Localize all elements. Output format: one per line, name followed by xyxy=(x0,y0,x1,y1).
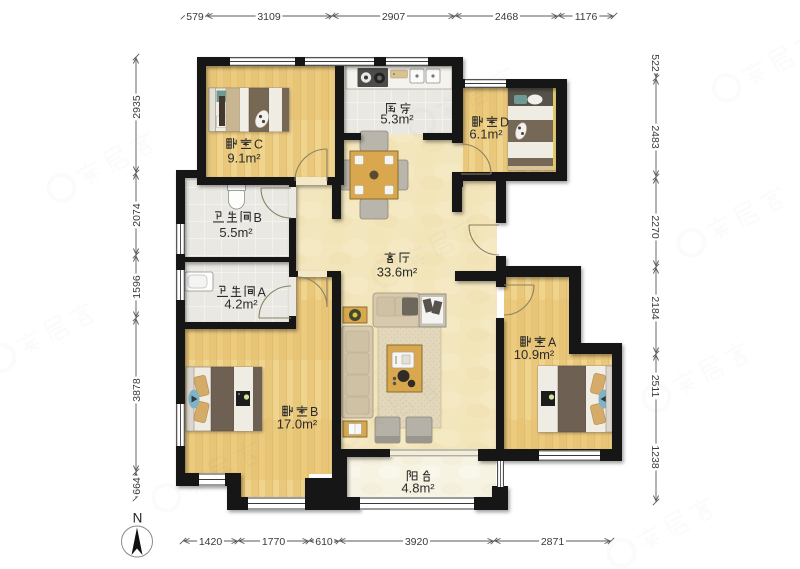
svg-text:6.1m²: 6.1m² xyxy=(469,127,503,142)
svg-text:2935: 2935 xyxy=(131,95,143,119)
svg-text:664: 664 xyxy=(131,477,143,495)
svg-text:2074: 2074 xyxy=(131,203,143,227)
svg-text:4.2m²: 4.2m² xyxy=(224,297,258,312)
svg-text:A: A xyxy=(258,286,267,300)
svg-text:2483: 2483 xyxy=(649,125,661,149)
svg-text:579: 579 xyxy=(186,11,204,23)
svg-text:522: 522 xyxy=(649,54,661,72)
svg-text:1770: 1770 xyxy=(262,536,286,548)
svg-text:9.1m²: 9.1m² xyxy=(227,151,261,166)
svg-text:3109: 3109 xyxy=(257,11,281,23)
svg-text:1420: 1420 xyxy=(199,536,223,548)
svg-text:2468: 2468 xyxy=(495,11,519,23)
svg-text:610: 610 xyxy=(315,536,333,548)
svg-text:1596: 1596 xyxy=(131,275,143,299)
svg-text:4.8m²: 4.8m² xyxy=(401,481,435,496)
svg-text:10.9m²: 10.9m² xyxy=(514,347,555,362)
svg-text:1176: 1176 xyxy=(575,11,598,23)
svg-text:B: B xyxy=(254,211,262,225)
svg-text:2871: 2871 xyxy=(541,536,565,548)
svg-text:1238: 1238 xyxy=(649,445,661,469)
svg-text:C: C xyxy=(254,138,263,152)
svg-text:2907: 2907 xyxy=(382,11,406,23)
svg-text:17.0m²: 17.0m² xyxy=(277,417,318,432)
svg-text:3878: 3878 xyxy=(131,378,143,402)
svg-text:2270: 2270 xyxy=(649,215,661,239)
svg-text:N: N xyxy=(133,511,143,526)
svg-text:5.5m²: 5.5m² xyxy=(219,225,253,240)
svg-text:3920: 3920 xyxy=(405,536,429,548)
svg-text:2184: 2184 xyxy=(649,296,661,320)
